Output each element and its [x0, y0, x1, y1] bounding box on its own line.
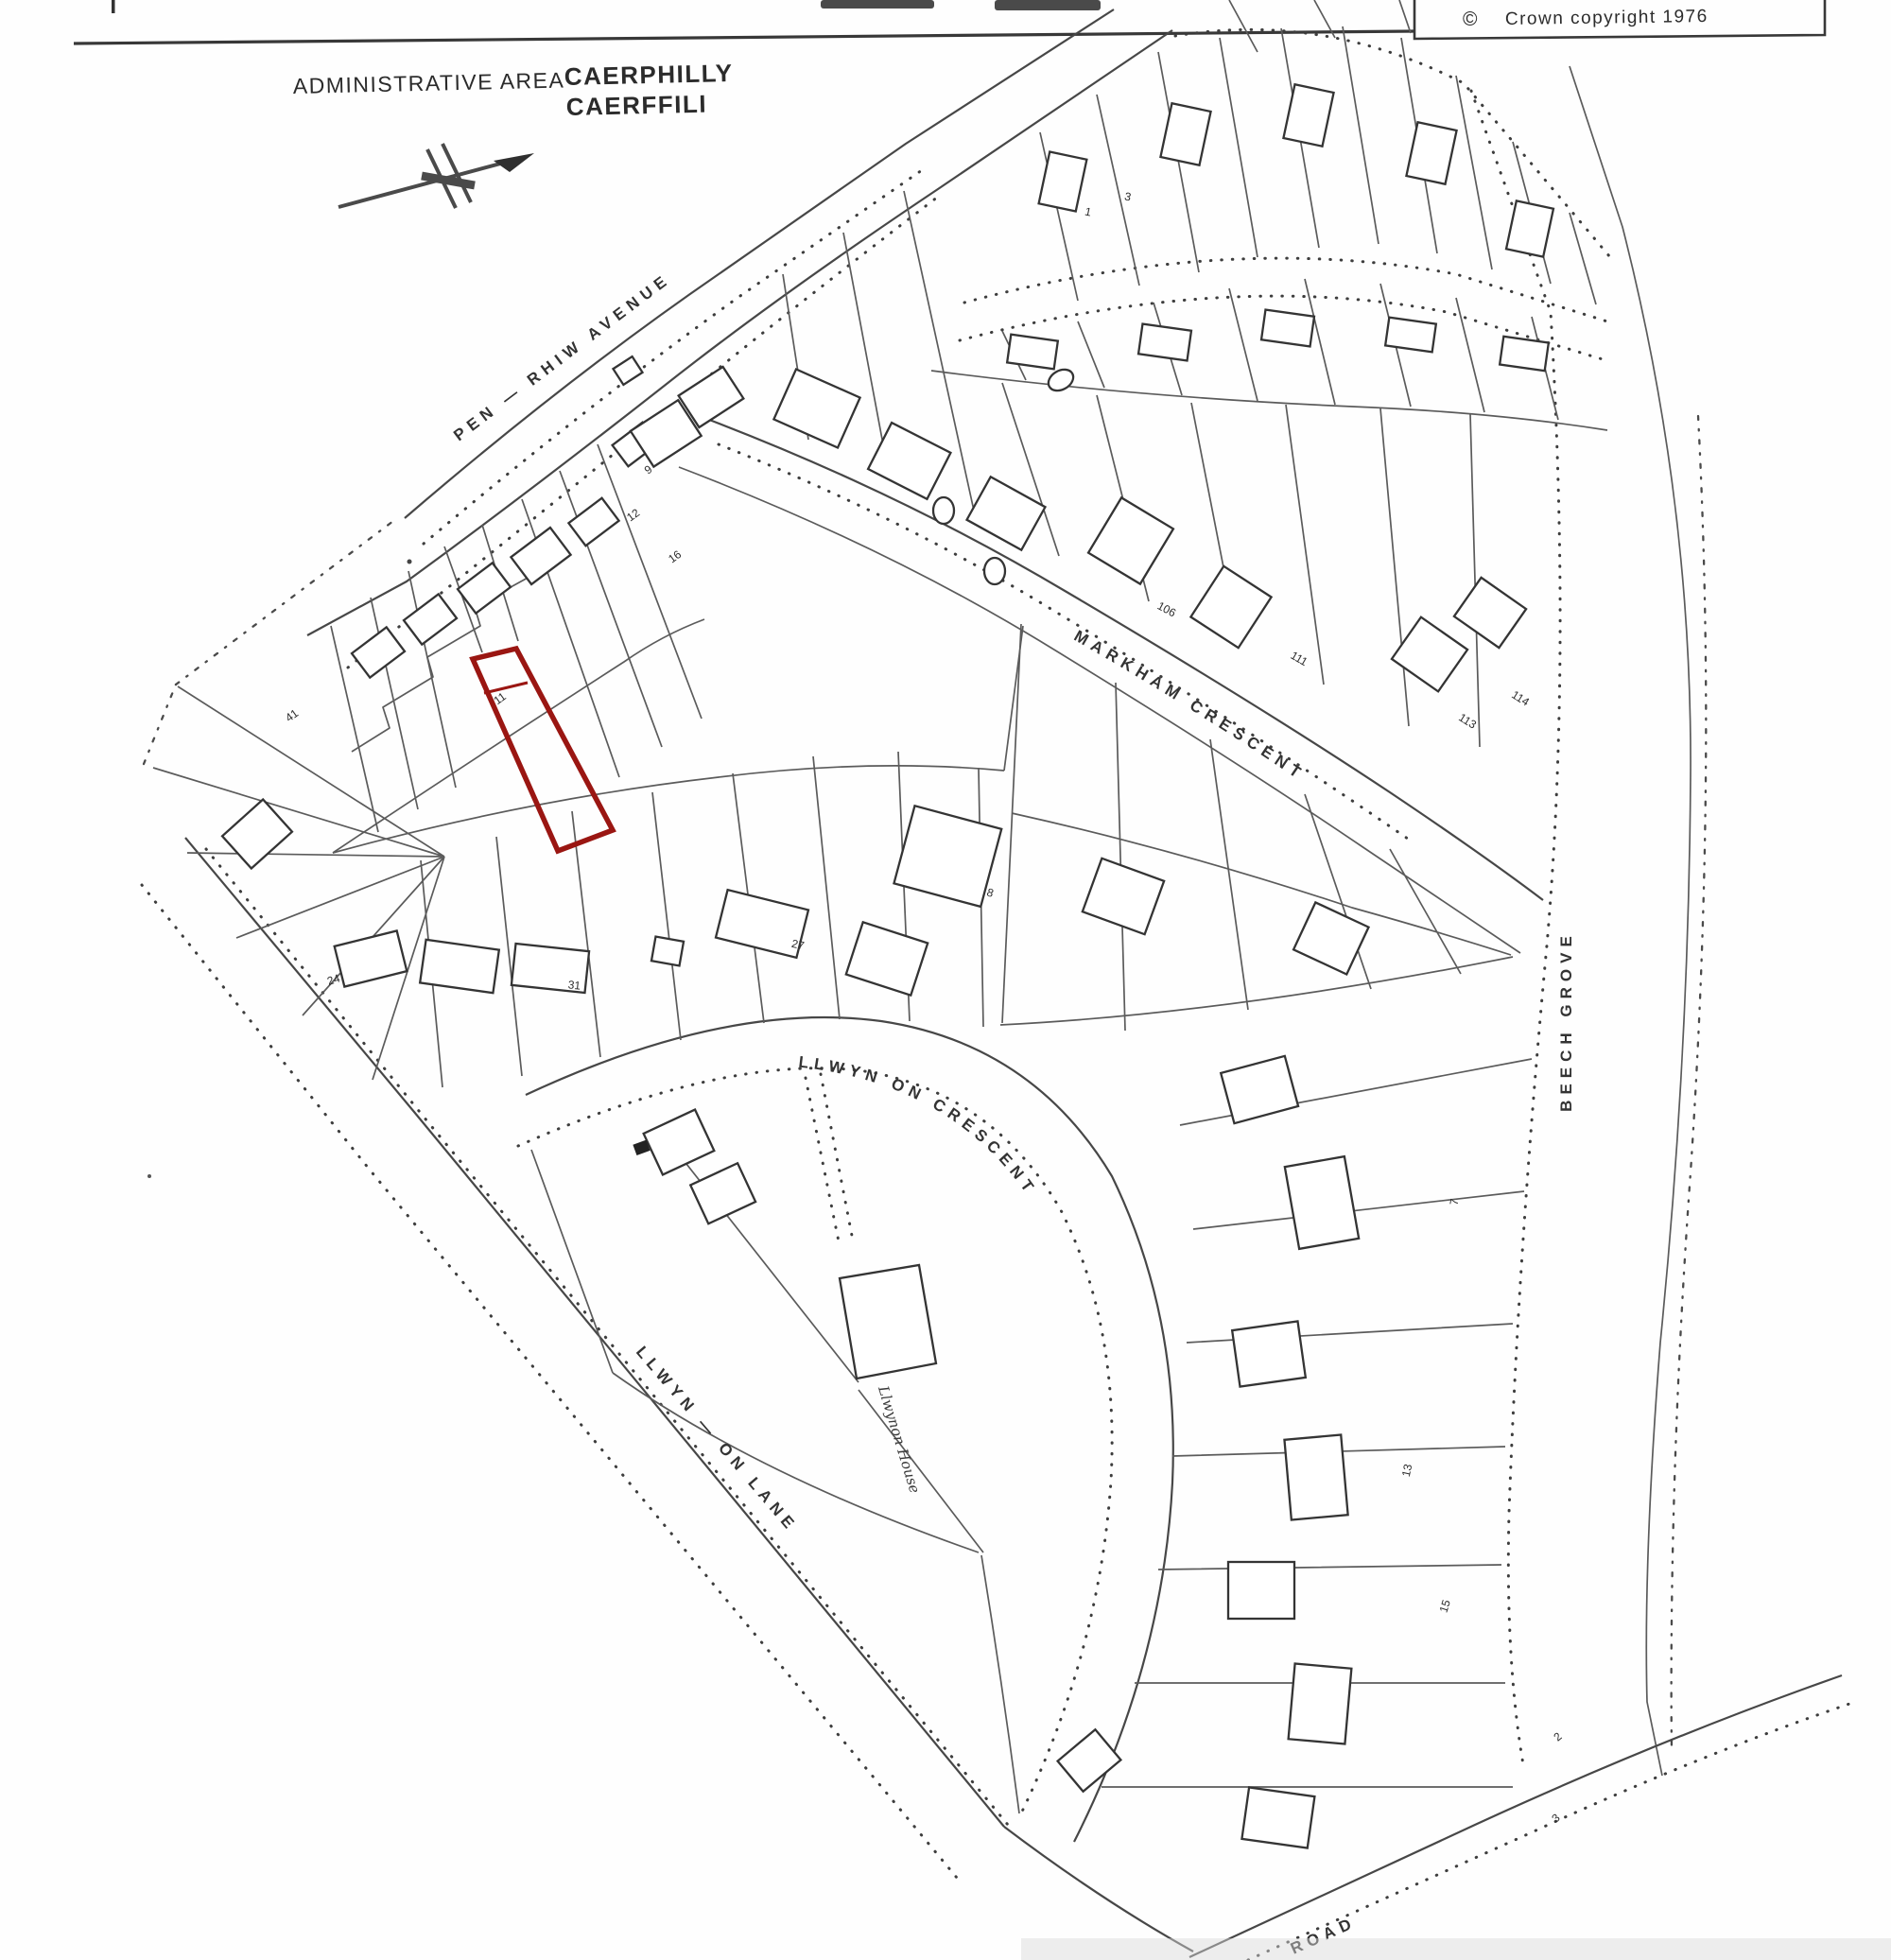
- plot-number: 27: [790, 937, 806, 953]
- plot-number: 13: [1399, 1463, 1415, 1478]
- admin-area-value-1: CAERPHILLY: [564, 59, 733, 91]
- street-label-pen-rhiw-avenue: PEN — RHIW AVENUE: [450, 269, 674, 444]
- plot-number: 113: [1456, 711, 1479, 732]
- plot-number: 1: [1084, 205, 1093, 219]
- cut-off-text-fragment: [821, 0, 934, 9]
- scan-shadow: [1021, 1938, 1891, 1960]
- form-box-edge: [112, 0, 115, 13]
- plot-number: 111: [1289, 649, 1310, 668]
- plot-number: 31: [567, 978, 581, 992]
- plot-number: 106: [1155, 599, 1179, 620]
- plot-number: 114: [1509, 688, 1532, 709]
- admin-area-value-2: CAERFFILI: [565, 90, 707, 121]
- copyright-symbol: ©: [1463, 9, 1478, 30]
- scanned-title-plan: © Crown copyright 1976 ADMINISTRATIVE AR…: [0, 0, 1891, 1960]
- plot-number: 3: [1549, 1811, 1562, 1825]
- header-rule: [74, 31, 1414, 43]
- admin-area-label: ADMINISTRATIVE AREA: [293, 67, 565, 98]
- street-label-llwyn-on-crescent: LLWYN ON CRESCENT: [798, 1053, 1041, 1200]
- house-outlines: [222, 84, 1553, 1847]
- map-image: © Crown copyright 1976 ADMINISTRATIVE AR…: [0, 0, 1891, 1960]
- plot-numbers: 11 41 9 12 16 8 106 111 113 114 31 27 24…: [283, 190, 1565, 1826]
- street-label-markham-crescent: MARKHAM CRESCENT: [1071, 627, 1309, 785]
- plot-number: 41: [283, 706, 301, 724]
- copyright-text: Crown copyright 1976: [1505, 7, 1709, 29]
- cut-off-text-fragment: [995, 0, 1101, 10]
- plot-number: 2: [1551, 1729, 1564, 1743]
- place-label-llwynon-house: Llwynon House: [875, 1383, 924, 1496]
- llwynon-house-outline: [840, 1265, 936, 1379]
- plot-number: 15: [1436, 1598, 1453, 1614]
- highlighted-subject-plot: [473, 649, 613, 851]
- red-edged-plot-outline: [473, 649, 613, 851]
- street-label-llwyn-on-lane: LLWYN — ON LANE: [633, 1343, 801, 1535]
- north-arrow-icon: [338, 144, 534, 208]
- plot-boundary-lines: [153, 26, 1607, 1813]
- street-label-beech-grove: BEECH GROVE: [1557, 930, 1575, 1112]
- plot-number: 3: [1123, 190, 1133, 204]
- plot-number: 16: [666, 547, 684, 565]
- header-strip: © Crown copyright 1976 ADMINISTRATIVE AR…: [74, 0, 1825, 121]
